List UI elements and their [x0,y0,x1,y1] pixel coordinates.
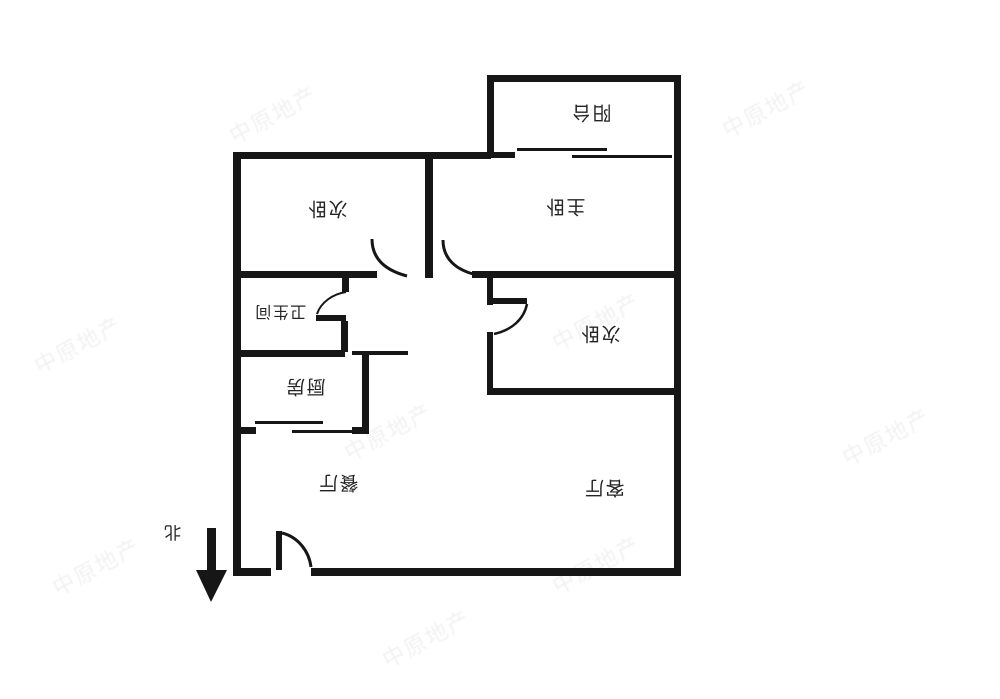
wall-balcony-sill-stub [487,152,515,158]
kitchen-sliding-door-line [292,430,360,433]
wall-bottom-left [233,568,271,576]
wall-hall-thin [352,351,408,355]
floorplan-canvas: 北 阳台 主卧 次卧 次卧 卫生间 厨房 餐厅 客厅 [0,0,1000,699]
wall-bottom-right [311,568,681,576]
room-label-bedroom-right: 次卧 [579,323,620,345]
door-arc-bedroom-right [494,304,527,334]
door-leaf-bathroom [316,315,346,321]
floorplan: 中原地产 中原地产 中原地产 中原地产 中原地产 中原地产 中原地产 中原地产 … [0,0,1000,699]
room-label-bathroom: 卫生间 [254,303,307,321]
door-arc-bathroom [317,292,346,314]
wall-bathroom-right-lower [341,321,348,352]
wall-bathroom-bottom [233,350,345,357]
north-arrow-head [196,570,227,602]
wall-balcony-left [487,75,494,157]
room-label-balcony: 阳台 [570,102,611,124]
room-label-bedroom-left: 次卧 [306,198,347,220]
door-leaf-entry [276,531,282,570]
wall-bedroom-right-upper [487,278,493,305]
wall-right [674,75,681,576]
kitchen-sliding-door-line [255,421,323,424]
room-label-master-bedroom: 主卧 [544,196,585,218]
wall-bedroom-right-lower [487,332,493,394]
north-arrow [196,528,227,602]
balcony-sliding-door-line [517,148,607,151]
door-leaf-bedroom-right [493,298,527,304]
door-arc-bedroom-left [372,239,407,276]
wall-bedroom-divider [425,152,433,278]
wall-top [233,152,491,159]
wall-balcony-top [487,75,681,82]
wall-bathroom-right-upper [342,278,349,292]
north-arrow-shaft [207,528,216,576]
wall-kitchen-right [362,352,369,432]
room-label-living: 客厅 [583,477,624,499]
north-label: 北 [163,523,182,542]
wall-left [233,152,241,576]
wall-bedroom-left-bottom [233,271,377,278]
wall-master-bottom [472,271,681,278]
door-arc-master [443,240,477,275]
room-label-kitchen: 厨房 [284,376,325,398]
balcony-sliding-door-line [572,155,672,158]
wall-bedroom-right-bottom [487,388,681,395]
wall-kitchen-jamb-left [233,427,256,434]
door-arc-entry [282,533,311,567]
room-label-dining: 餐厅 [317,472,358,494]
